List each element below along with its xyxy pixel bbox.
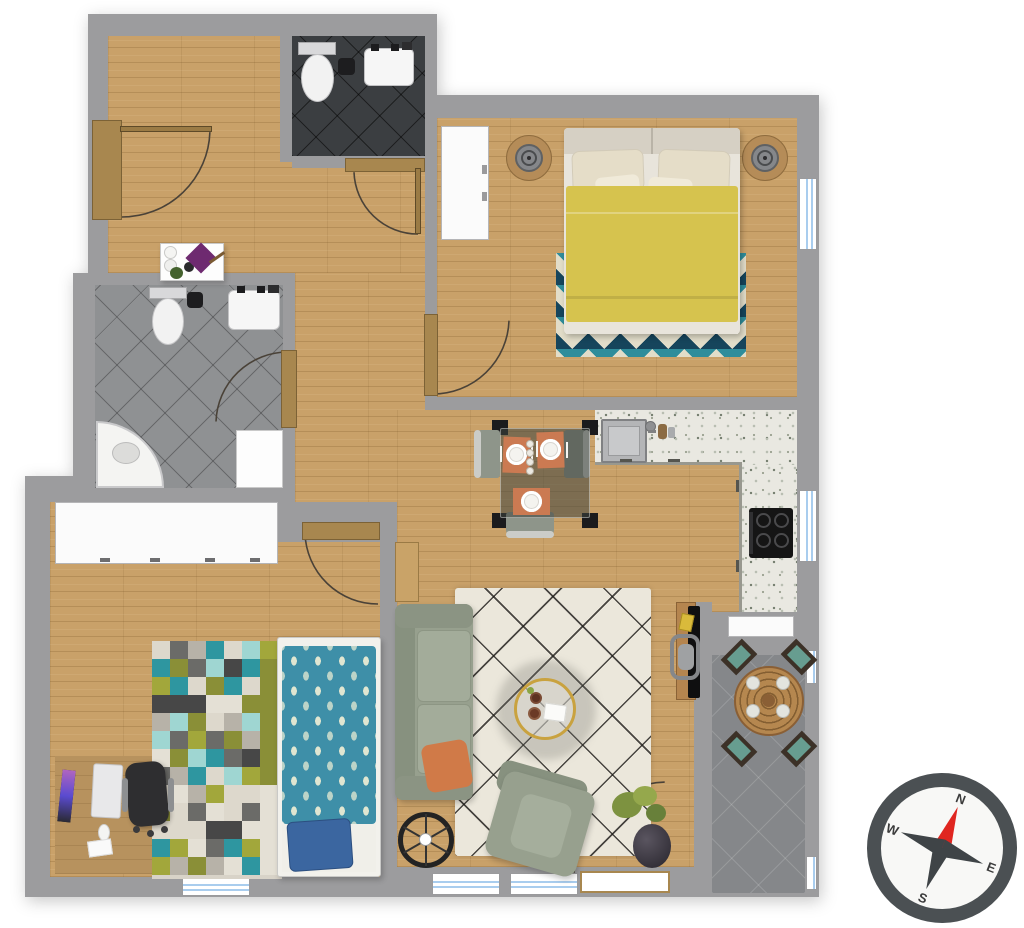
kids-rug-cell	[152, 677, 170, 695]
kids-rug-cell	[242, 677, 260, 695]
candle-4	[526, 467, 534, 475]
kitchen-window	[799, 490, 817, 562]
plant-foliage-3	[646, 804, 666, 822]
office-chair-wheel-3	[161, 826, 168, 833]
kids-rug-cell	[152, 641, 170, 659]
plant-vase	[633, 824, 671, 868]
kids-rug-cell	[224, 785, 242, 803]
counter-handle-2	[668, 459, 680, 462]
kids-rug-cell	[188, 857, 206, 875]
kids-rug-cell	[206, 839, 224, 857]
kids-rug-cell	[188, 803, 206, 821]
coffee-cup-1	[530, 692, 542, 704]
bed-duvet-highlight	[566, 212, 738, 214]
kids-rug-cell	[242, 785, 260, 803]
kids-rug-cell	[260, 641, 278, 659]
kids-rug-cell	[206, 641, 224, 659]
kids-rug-cell	[188, 659, 206, 677]
kids-rug-cell	[206, 767, 224, 785]
kids-rug-cell	[206, 677, 224, 695]
kids-rug-cell	[242, 821, 260, 839]
office-chair-wheel-1	[133, 826, 140, 833]
kids-bed-pillow	[286, 818, 353, 872]
kids-rug-cell	[188, 839, 206, 857]
kids-rug-cell	[224, 731, 242, 749]
balcony-door-sill	[580, 871, 670, 893]
kitchen-bottle-1	[658, 424, 667, 439]
kids-rug-cell	[260, 839, 278, 857]
candle-2	[526, 449, 534, 457]
wc-sink	[364, 48, 414, 86]
balcony-glazing-bottom	[806, 856, 817, 890]
kids-wardrobe-handle-2	[150, 558, 160, 562]
coffee-table-leaf	[527, 687, 534, 694]
wc-toilet-bowl	[301, 54, 334, 102]
bed-headboard-split	[651, 128, 653, 154]
cooktop-knob-strip	[749, 512, 753, 554]
counter-handle-4	[736, 560, 739, 572]
kids-rug-cell	[170, 659, 188, 677]
kids-rug	[152, 641, 282, 879]
counter-handle-1	[620, 459, 632, 462]
dining-chair-left-back	[474, 430, 481, 478]
entry-door-swing	[122, 132, 210, 217]
kids-rug-cell	[170, 839, 188, 857]
speaker-right-dot	[763, 156, 767, 160]
kids-rug-cell	[206, 731, 224, 749]
bathroom-door-swing	[216, 352, 288, 422]
candle-1	[526, 440, 534, 448]
kitchen-faucet-spout	[648, 430, 656, 433]
office-chair-wheel-2	[147, 830, 154, 837]
kids-rug-cell	[206, 803, 224, 821]
burner-1	[756, 513, 771, 528]
bathroom-waste-bin	[187, 292, 203, 308]
kids-rug-cell	[152, 713, 170, 731]
kids-rug-cell	[260, 803, 278, 821]
bathroom-door-sill	[281, 350, 297, 428]
kids-rug-cell	[152, 695, 170, 713]
console-plant	[170, 267, 183, 279]
kids-door-lintel	[302, 522, 380, 540]
bed-duvet-fold	[566, 296, 738, 299]
kids-rug-cell	[242, 839, 260, 857]
bathroom-faucet-left	[237, 286, 245, 293]
kids-wardrobe-handle-1	[100, 558, 110, 562]
office-chair-arm-left	[122, 778, 128, 812]
bedroom-window	[799, 178, 817, 250]
kids-rug-cell	[152, 731, 170, 749]
wc-faucet-left	[371, 44, 379, 51]
floor-plan-canvas: N E S W	[0, 0, 1024, 928]
balcony-plate-1	[746, 676, 760, 690]
sofa-cushion-1	[417, 630, 471, 702]
kids-rug-cell	[170, 641, 188, 659]
kitchen-sink-basin	[608, 426, 640, 456]
sofa-armrest-top	[395, 604, 473, 628]
shower-drain	[112, 442, 140, 464]
wardrobe-handle-2	[482, 192, 487, 201]
kids-rug-cell	[260, 659, 278, 677]
kids-rug-cell	[224, 767, 242, 785]
kids-bed-duvet	[282, 646, 376, 824]
wc-soap	[402, 42, 412, 50]
kids-rug-cell	[188, 713, 206, 731]
burner-4	[774, 533, 789, 548]
cutlery-3	[536, 441, 538, 457]
kids-rug-cell	[260, 767, 278, 785]
kids-rug-cell	[224, 821, 242, 839]
bed-footboard	[566, 322, 738, 334]
wc-waste-bin	[338, 58, 355, 75]
kids-wardrobe-handle-3	[205, 558, 215, 562]
sofa-orange-pillow	[420, 738, 474, 793]
kids-rug-cell	[206, 659, 224, 677]
plate-3	[521, 491, 542, 512]
plate-1	[506, 444, 527, 465]
kids-rug-cell	[260, 695, 278, 713]
bedroom-door-panel	[424, 314, 438, 396]
bedroom-wardrobe	[441, 126, 489, 240]
kids-rug-cell	[260, 713, 278, 731]
kids-wardrobe	[55, 502, 278, 564]
living-window-2	[510, 873, 578, 895]
kids-rug-cell	[260, 857, 278, 875]
bedroom-door-swing	[433, 321, 509, 394]
counter-handle-3	[736, 480, 739, 492]
office-chair-arm-right	[168, 778, 174, 812]
kids-rug-cell	[188, 767, 206, 785]
kids-rug-cell	[224, 803, 242, 821]
kids-rug-cell	[170, 731, 188, 749]
wc-faucet-right	[391, 44, 399, 51]
kids-rug-cell	[206, 713, 224, 731]
plant-foliage-2	[633, 786, 657, 806]
kids-rug-cell	[206, 821, 224, 839]
wc-door-leaf	[415, 168, 421, 234]
kids-rug-cell	[242, 767, 260, 785]
kids-rug-cell	[242, 641, 260, 659]
kids-rug-cell	[206, 695, 224, 713]
living-window-1	[432, 873, 500, 895]
bathroom-faucet-right	[257, 286, 265, 293]
candle-3	[526, 458, 534, 466]
kids-rug-cell	[206, 749, 224, 767]
kids-rug-cell	[152, 857, 170, 875]
kids-rug-cell	[260, 731, 278, 749]
balcony-plate-4	[776, 704, 790, 718]
kids-rug-cell	[224, 839, 242, 857]
cutlery-4	[566, 442, 568, 458]
balcony-table-center	[762, 694, 775, 707]
wc-door-sill	[345, 158, 425, 172]
burner-3	[756, 533, 771, 548]
bathroom-soap	[268, 285, 279, 293]
kids-rug-cell	[170, 713, 188, 731]
coffee-table-book	[543, 703, 567, 723]
kids-rug-cell	[224, 749, 242, 767]
kids-rug-cell	[242, 731, 260, 749]
wc-door-swing	[354, 172, 418, 234]
console-roll-1	[164, 246, 177, 259]
kids-rug-cell	[224, 713, 242, 731]
bed-duvet-yellow	[566, 186, 738, 322]
kids-rug-cell	[242, 659, 260, 677]
kids-rug-cell	[188, 695, 206, 713]
kids-door-swing	[305, 534, 378, 605]
kids-rug-cell	[188, 821, 206, 839]
kids-rug-cell	[242, 713, 260, 731]
kids-window	[182, 876, 250, 896]
kids-rug-cell	[224, 857, 242, 875]
kids-rug-cell	[260, 749, 278, 767]
kitchen-bottle-2	[668, 427, 675, 438]
kids-rug-cell	[260, 677, 278, 695]
bathroom-toilet-bowl	[152, 298, 184, 345]
kids-wardrobe-handle-4	[250, 558, 260, 562]
kids-rug-cell	[188, 749, 206, 767]
kids-rug-cell	[188, 731, 206, 749]
compass-rose: N E S W	[864, 770, 1020, 926]
kids-rug-cell	[206, 857, 224, 875]
kids-rug-cell	[170, 695, 188, 713]
kids-rug-cell	[152, 839, 170, 857]
desk-paper	[87, 838, 113, 857]
wardrobe-handle-1	[482, 165, 487, 174]
kids-rug-cell	[206, 785, 224, 803]
kids-rug-cell	[224, 659, 242, 677]
kids-rug-cell	[188, 641, 206, 659]
wheel-decor-hub	[419, 833, 432, 846]
cutlery-1	[500, 446, 502, 462]
kids-rug-cell	[188, 785, 206, 803]
sofa-side-table	[395, 542, 419, 602]
washing-machine	[236, 430, 283, 488]
speaker-left-dot	[527, 156, 531, 160]
kids-rug-cell	[170, 857, 188, 875]
sofa-backrest	[395, 604, 415, 800]
kids-rug-cell	[170, 677, 188, 695]
kids-rug-cell	[242, 857, 260, 875]
kids-rug-cell	[224, 677, 242, 695]
kids-rug-cell	[260, 785, 278, 803]
coffee-cup-2	[528, 707, 541, 720]
kids-rug-cell	[170, 821, 188, 839]
kids-rug-cell	[152, 659, 170, 677]
balcony-plate-2	[776, 676, 790, 690]
kids-rug-cell	[224, 695, 242, 713]
burner-2	[774, 513, 789, 528]
kids-rug-cell	[224, 641, 242, 659]
desk-keyboard	[91, 763, 124, 818]
dining-chair-bottom-back	[506, 531, 554, 538]
tv-chair-seat	[678, 644, 694, 670]
balcony-plate-3	[746, 704, 760, 718]
kids-rug-cell	[188, 677, 206, 695]
kids-rug-cell	[242, 695, 260, 713]
office-chair-seat	[124, 760, 169, 827]
kids-rug-cell	[242, 803, 260, 821]
plate-2	[540, 439, 561, 460]
bathroom-sink	[228, 290, 280, 330]
kids-rug-cell	[242, 749, 260, 767]
kids-rug-cell	[170, 749, 188, 767]
kids-rug-cell	[260, 821, 278, 839]
